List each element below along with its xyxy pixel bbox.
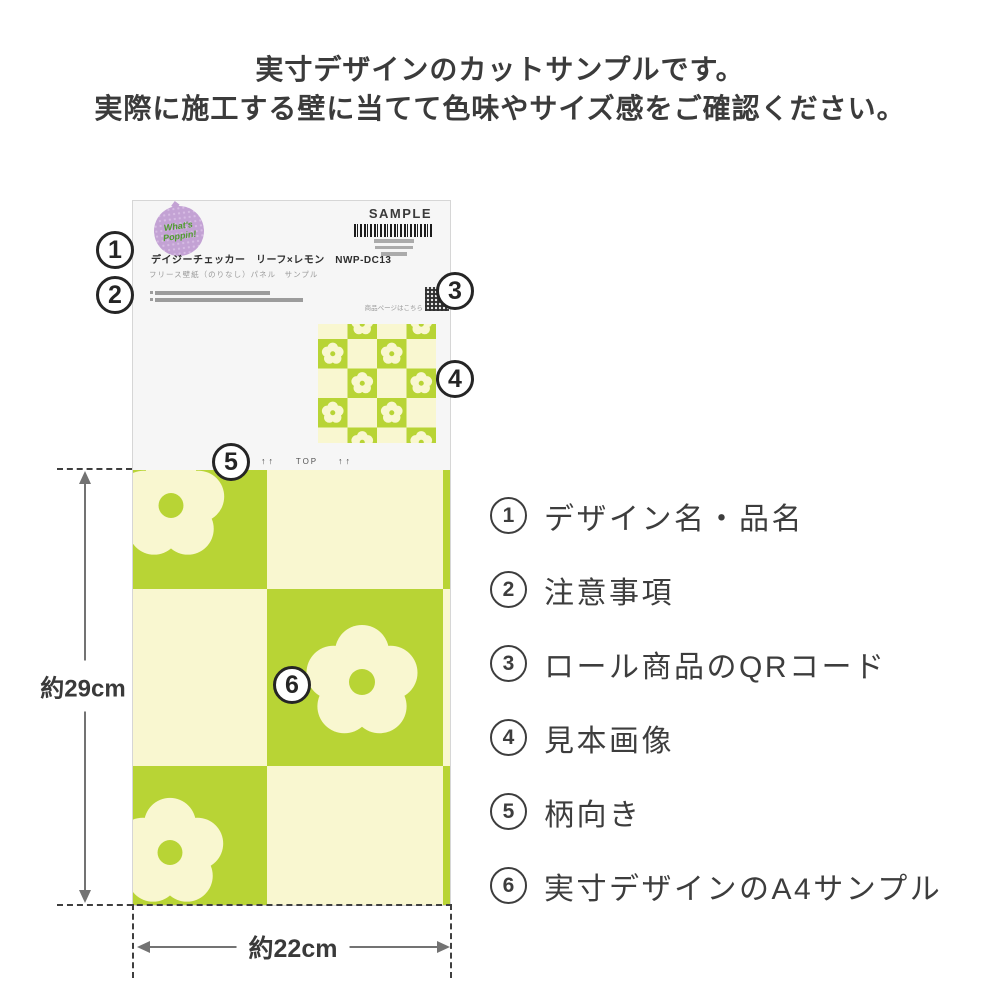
callout-3: 3 [436,272,474,310]
qr-caption: 商品ページはこちら [365,302,423,312]
legend-item-design-name: 1 デザイン名・品名 [490,497,942,534]
sample-word: SAMPLE [369,206,432,221]
height-dimension-label: 約29cm [38,661,127,712]
arrow-down-icon [79,890,91,903]
product-spec: フリース壁紙（のりなし）パネル サンプル [149,269,318,280]
legend-label-5: 柄向き [544,790,642,834]
sample-label-area: What's Poppin! SAMPLE デイジーチェッカー リーフ×レモン … [133,201,450,470]
product-name: デイジーチェッカー リーフ×レモン NWP-DC13 [151,251,391,266]
legend-item-a4-sample: 6 実寸デザインのA4サンプル [490,867,942,904]
dashed-tick-right [450,904,452,978]
redacted-line [150,298,303,302]
callout-2: 2 [96,276,134,314]
redacted-line [150,291,303,295]
legend-label-6: 実寸デザインのA4サンプル [544,864,942,908]
legend-number-3: 3 [490,645,527,682]
legend-item-direction: 5 柄向き [490,793,942,830]
legend-number-6: 6 [490,867,527,904]
heading-line-2: 実際に施工する壁に当てて色味やサイズ感をご確認ください。 [0,89,1000,128]
dashed-tick-top [57,468,132,470]
legend: 1 デザイン名・品名 2 注意事項 3 ロール商品のQRコード 4 見本画像 5… [490,497,942,904]
legend-item-qr: 3 ロール商品のQRコード [490,645,942,682]
arrow-up-icon [79,471,91,484]
legend-label-3: ロール商品のQRコード [544,642,887,686]
heading-line-1: 実寸デザインのカットサンプルです。 [0,50,1000,89]
legend-label-2: 注意事項 [544,568,674,612]
arrow-right-icon [437,941,450,953]
top-label: TOP [296,457,318,466]
up-arrows-icon: ↑↑ [261,456,276,466]
legend-number-2: 2 [490,571,527,608]
barcode [354,224,434,237]
callout-6: 6 [273,666,311,704]
dashed-tick-left [132,904,134,978]
cut-sample-card: What's Poppin! SAMPLE デイジーチェッカー リーフ×レモン … [132,200,451,906]
legend-number-1: 1 [490,497,527,534]
callout-5: 5 [212,443,250,481]
pattern-direction-marking: ↑↑ TOP ↑↑ [261,456,353,466]
legend-label-4: 見本画像 [544,716,674,760]
legend-item-notes: 2 注意事項 [490,571,942,608]
callout-4: 4 [436,360,474,398]
callout-1: 1 [96,231,134,269]
width-dimension-label: 約22cm [237,929,350,965]
dashed-tick-bottom [57,904,452,906]
page-heading: 実寸デザインのカットサンプルです。 実際に施工する壁に当てて色味やサイズ感をご確… [0,50,1000,128]
pattern-preview-image [318,324,436,443]
arrow-left-icon [137,941,150,953]
notes-lines [150,291,303,302]
legend-label-1: デザイン名・品名 [544,494,804,538]
up-arrows-icon: ↑↑ [338,456,353,466]
legend-number-4: 4 [490,719,527,756]
legend-number-5: 5 [490,793,527,830]
legend-item-preview: 4 見本画像 [490,719,942,756]
